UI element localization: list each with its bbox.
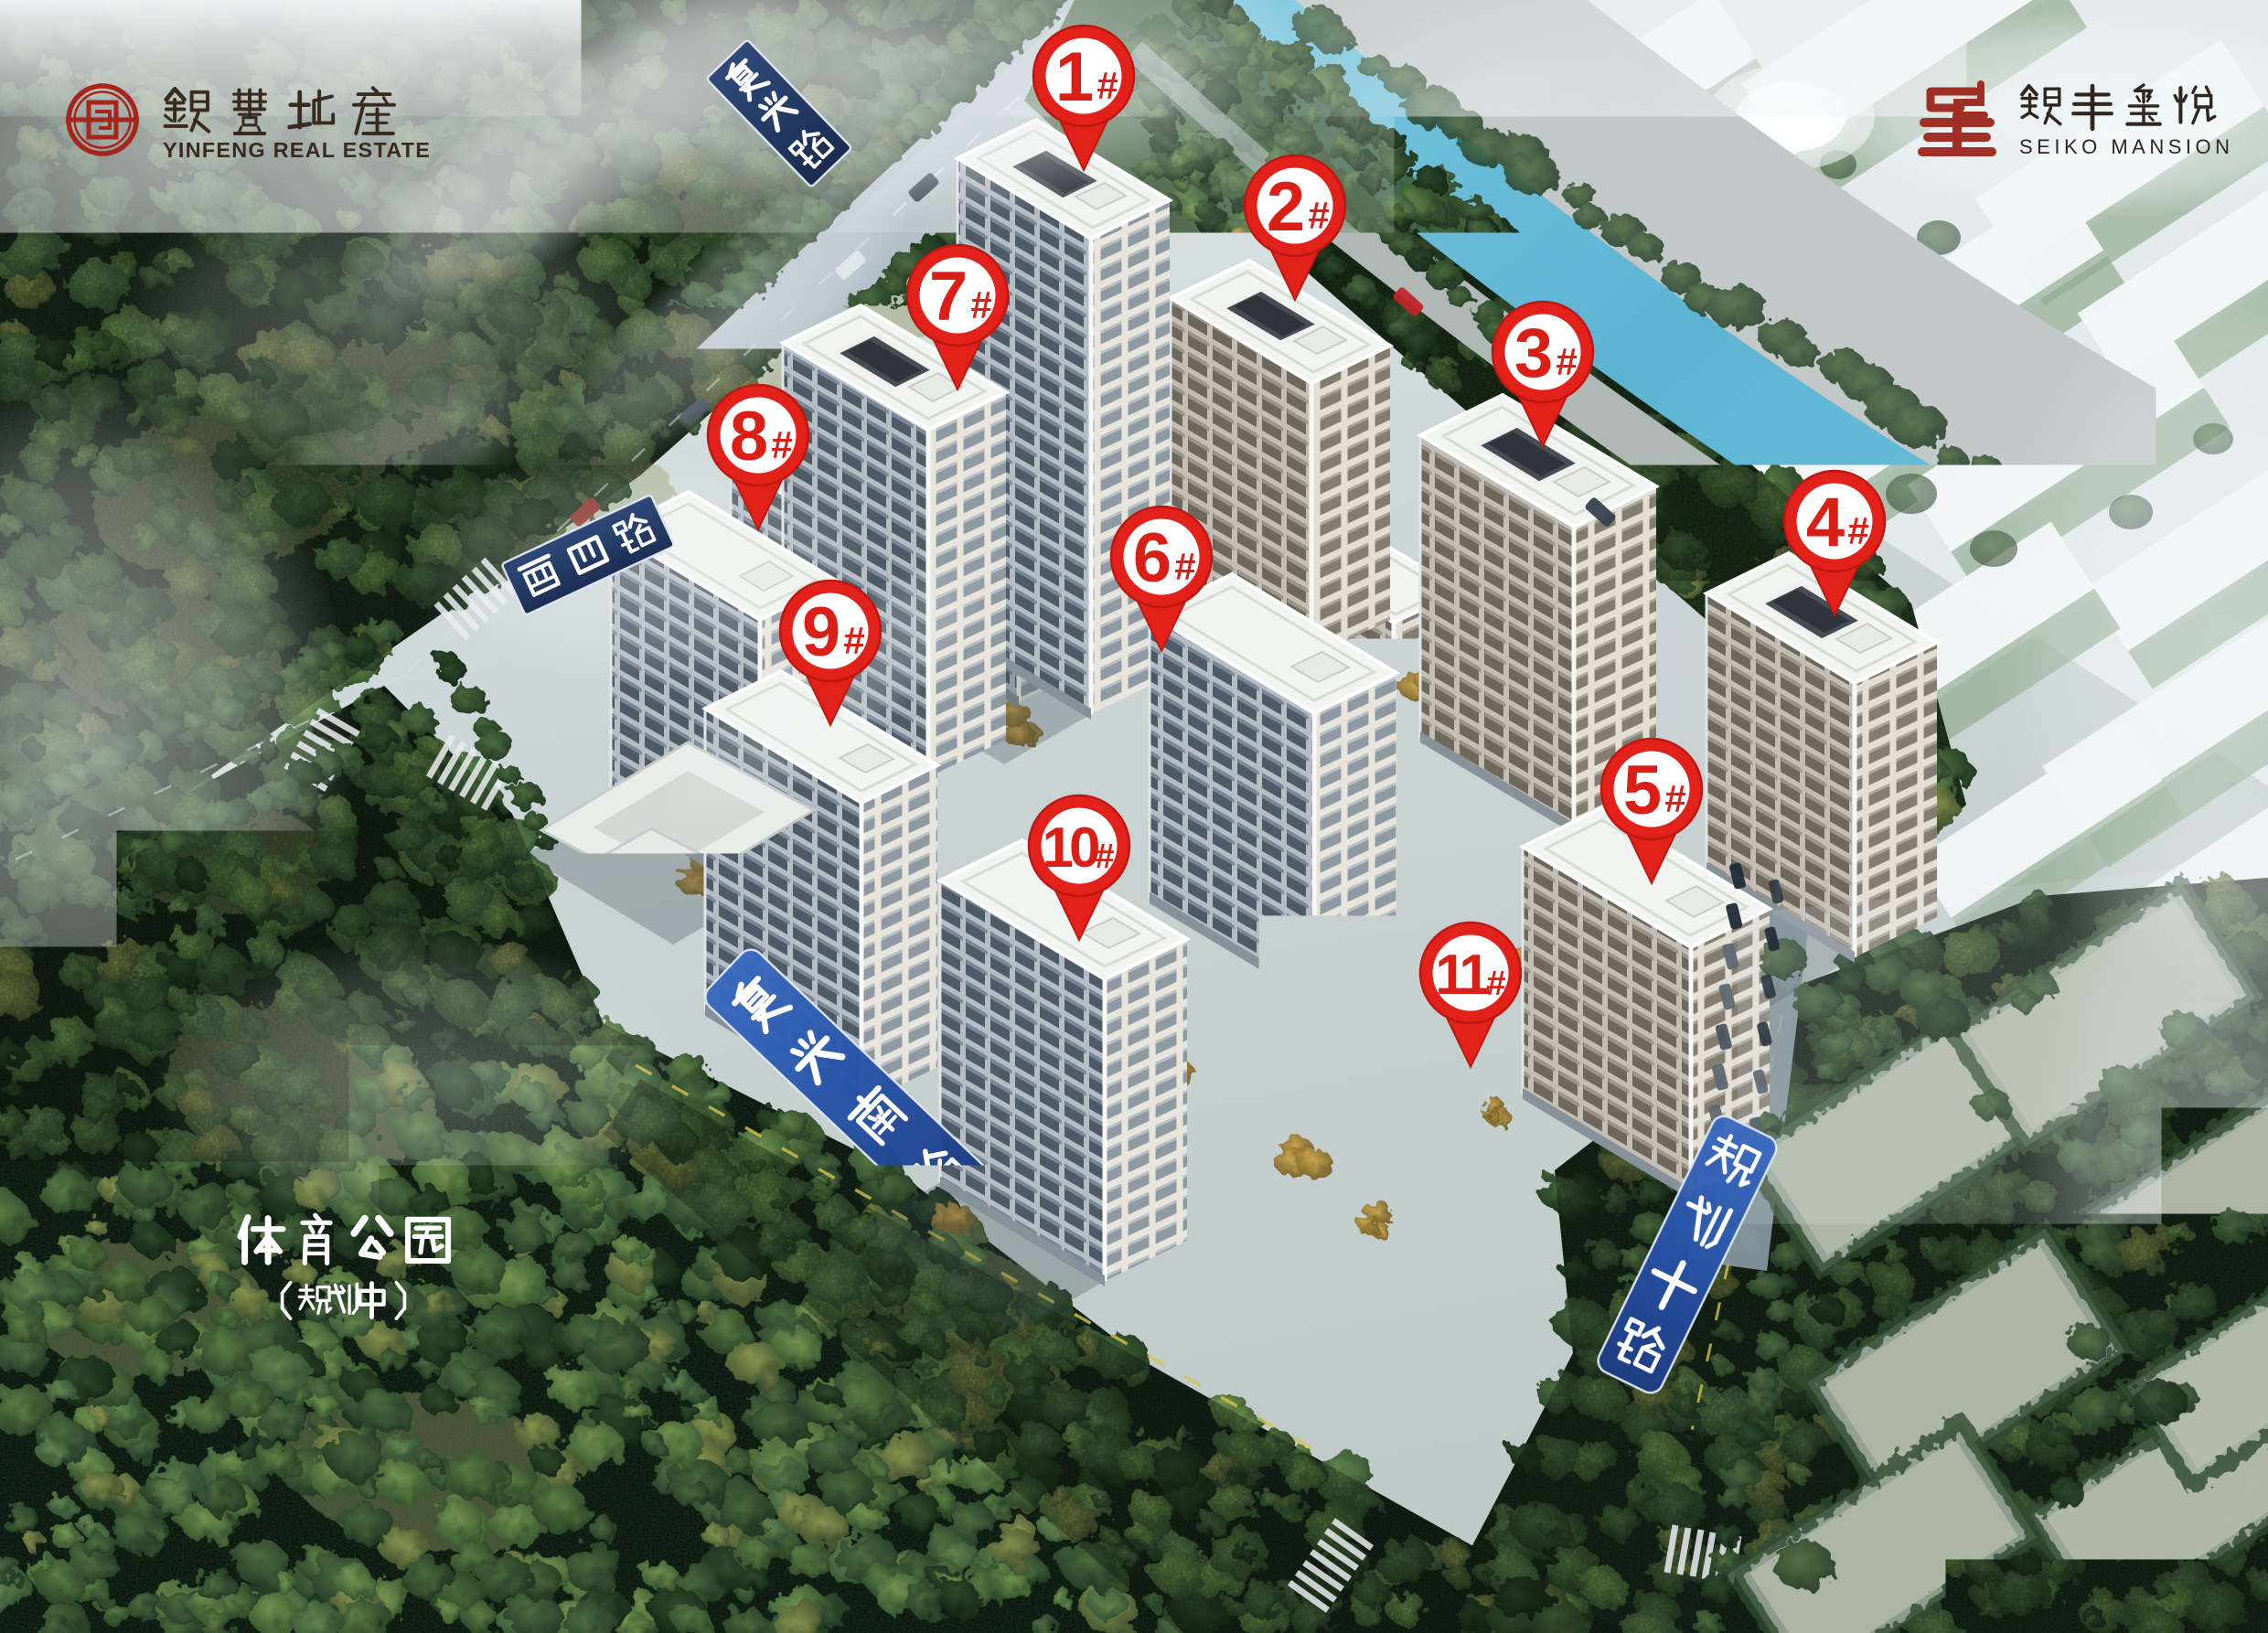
svg-text:#: # bbox=[1308, 194, 1329, 237]
svg-text:6: 6 bbox=[1133, 519, 1171, 597]
svg-text:2: 2 bbox=[1267, 168, 1305, 246]
svg-text:#: # bbox=[843, 619, 864, 662]
svg-text:10: 10 bbox=[1043, 816, 1098, 880]
svg-text:#: # bbox=[1556, 340, 1577, 383]
svg-text:#: # bbox=[1097, 64, 1118, 107]
svg-text:#: # bbox=[1664, 777, 1685, 820]
svg-text:#: # bbox=[1847, 509, 1868, 552]
svg-text:9: 9 bbox=[802, 593, 840, 671]
svg-text:#: # bbox=[771, 423, 792, 466]
svg-text:1: 1 bbox=[1055, 38, 1094, 116]
svg-text:11: 11 bbox=[1435, 944, 1489, 1007]
svg-text:5: 5 bbox=[1623, 752, 1662, 829]
svg-text:#: # bbox=[1095, 838, 1114, 876]
svg-text:4: 4 bbox=[1806, 484, 1845, 561]
svg-text:7: 7 bbox=[929, 258, 968, 336]
svg-text:3: 3 bbox=[1514, 315, 1553, 392]
svg-text:#: # bbox=[1486, 965, 1505, 1003]
svg-text:8: 8 bbox=[730, 398, 768, 475]
svg-text:#: # bbox=[1174, 545, 1195, 588]
svg-text:#: # bbox=[970, 283, 991, 326]
